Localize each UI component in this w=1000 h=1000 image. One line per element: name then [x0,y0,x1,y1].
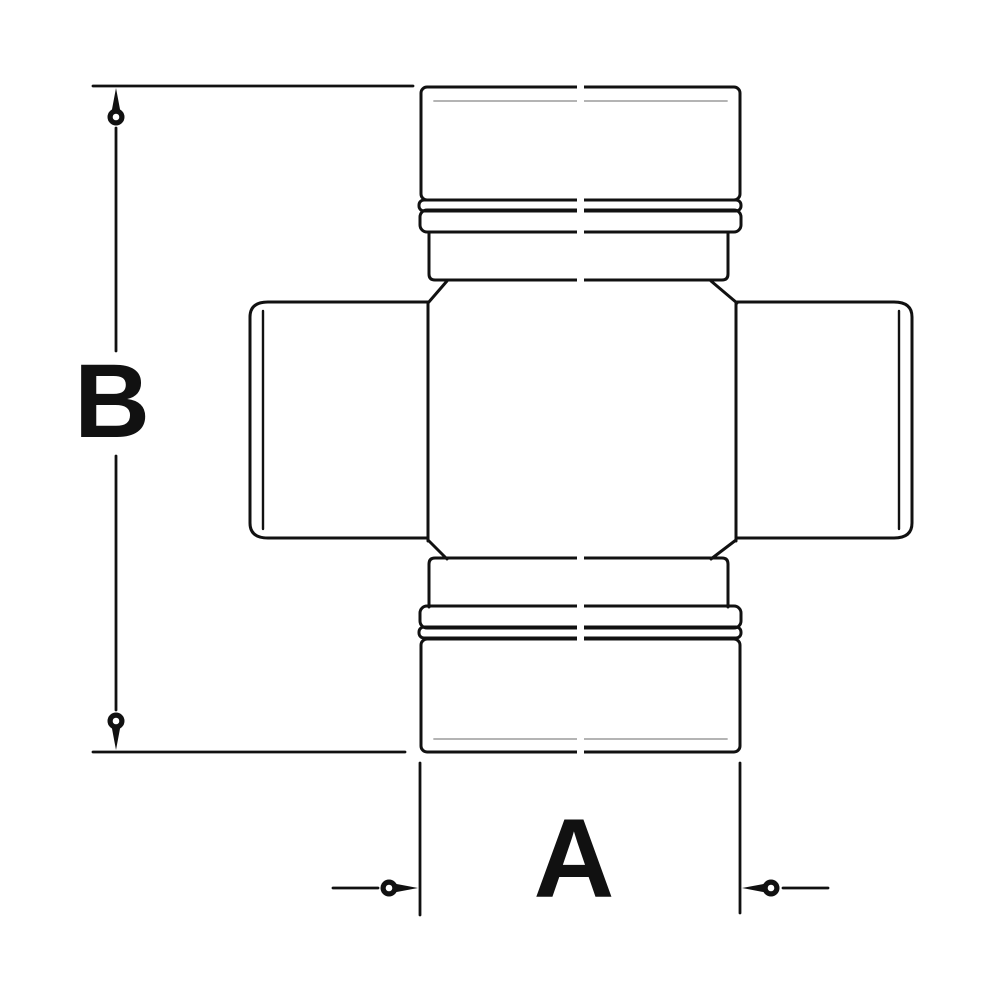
centerline-break [577,82,584,758]
left-bearing-cap [250,302,428,538]
top-right-chamfer [711,281,737,303]
dim-b-label: B [74,343,150,460]
bottom-right-chamfer [711,540,736,559]
bottom-left-chamfer [428,540,447,559]
top-left-chamfer [428,281,447,303]
dim-b-arrow-down-icon [110,715,122,750]
dim-a-label: A [534,796,615,921]
dim-b-arrow-up-icon [110,88,122,123]
dim-a-arrow-right-icon [383,882,418,894]
dimension-labels: B A [74,343,614,921]
ujoint-cross-drawing: B A [0,0,1000,1000]
right-bearing-cap [736,302,912,538]
dim-a-arrow-left-icon [742,882,777,894]
drawing-canvas: B A [0,0,1000,1000]
